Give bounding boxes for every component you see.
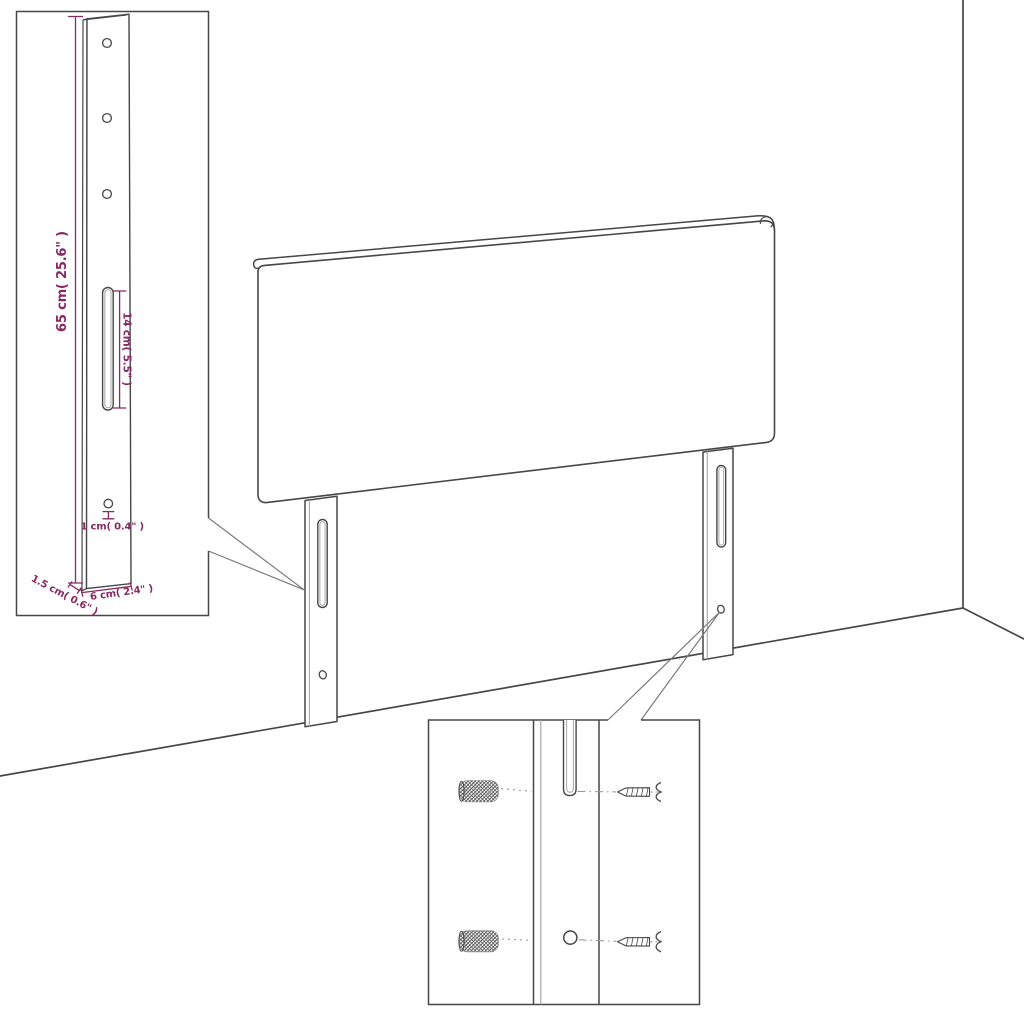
mounting-detail-inset [429, 720, 700, 1005]
dash-plug-to-slot [501, 789, 532, 792]
alignment-dash-lines [501, 789, 659, 942]
screw-body [618, 788, 650, 797]
leg-detail-callout [209, 518, 305, 590]
callout-line-right [641, 612, 720, 720]
dim-label-hole-diameter: 1 cm( 0.4" ) [81, 522, 144, 533]
callout-line-left [608, 612, 720, 720]
bracket-bottom-hole [104, 499, 113, 508]
floor-line-right [963, 608, 1024, 639]
screw-body [618, 938, 650, 947]
wall-plug-icon [459, 931, 499, 953]
left-leg [305, 496, 337, 727]
screw-icon [618, 783, 662, 802]
dim-label-height: 65 cm( 25.6" ) [55, 231, 70, 332]
leg-closeup [534, 720, 600, 1005]
wall-plug-icon [459, 781, 499, 803]
floor-line-left [0, 608, 963, 776]
mounting-detail-callout [608, 612, 720, 720]
dim-label-slot-length: 14 cm( 5.5" ) [121, 312, 133, 386]
dash-slot-to-screw [578, 791, 617, 792]
wall-plug-body [460, 781, 499, 803]
leg-bracket-drawing [82, 14, 131, 591]
dash-plug-to-hole [502, 939, 532, 940]
dash-hole-to-screw [579, 940, 617, 942]
dim-line-height [69, 17, 83, 584]
callout-line-upper [209, 518, 305, 590]
bracket-slot [103, 288, 114, 411]
assembly-diagram: 65 cm( 25.6" ) 14 cm( 5.5" ) 1 cm( 0.4" … [0, 0, 1024, 1024]
callout-line-lower [209, 551, 305, 590]
diagram-canvas: 65 cm( 25.6" ) 14 cm( 5.5" ) 1 cm( 0.4" … [0, 0, 1024, 1024]
bracket-hole-1 [103, 39, 112, 48]
leg-closeup-hole [564, 931, 577, 944]
bracket-hole-3 [103, 190, 112, 199]
right-leg-slot [717, 466, 726, 548]
left-leg-slot [318, 520, 327, 608]
headboard-panel [258, 221, 775, 503]
headboard [254, 216, 775, 503]
leg-detail-inset: 65 cm( 25.6" ) 14 cm( 5.5" ) 1 cm( 0.4" … [17, 12, 209, 618]
bracket-hole-2 [103, 114, 112, 123]
leg-closeup-slot [564, 720, 577, 796]
screw-icon [618, 932, 662, 952]
wall-plug-body [460, 931, 499, 953]
